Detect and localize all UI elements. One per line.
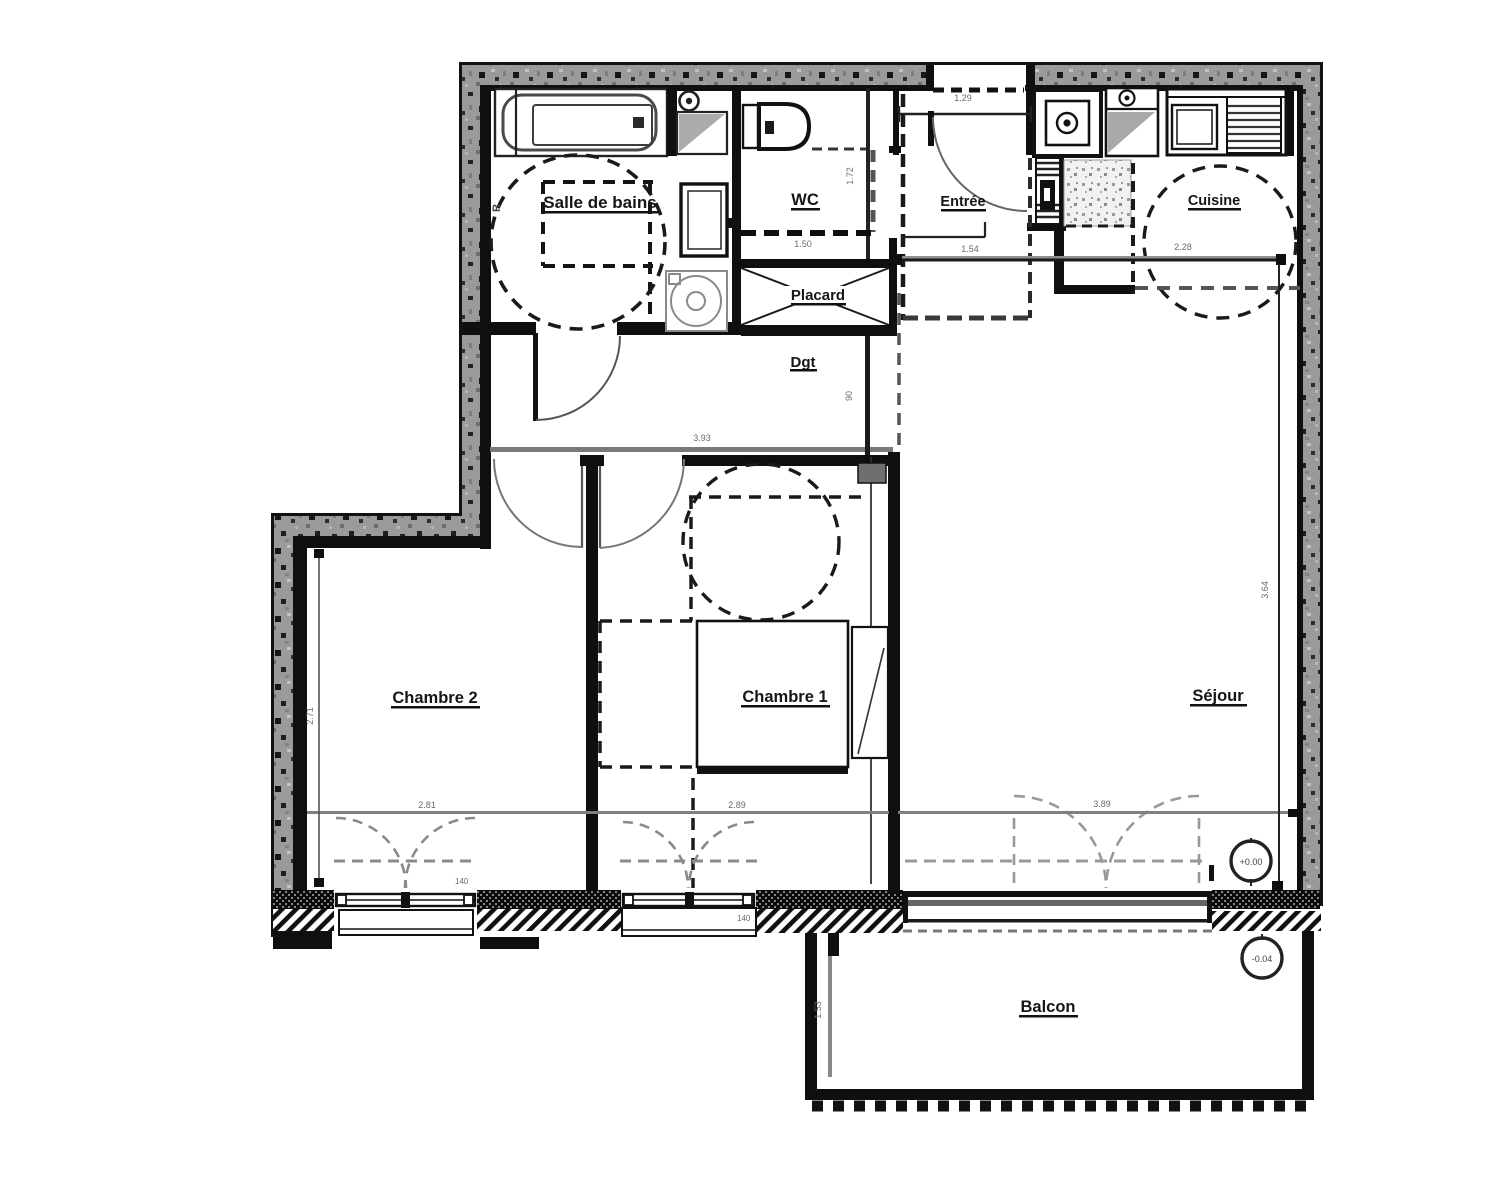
svg-text:140: 140	[737, 914, 751, 923]
svg-text:140: 140	[455, 877, 469, 886]
svg-text:+0.00: +0.00	[1240, 857, 1263, 867]
svg-text:2.28: 2.28	[1174, 242, 1192, 252]
svg-text:Dgt: Dgt	[791, 354, 816, 371]
svg-text:Placard: Placard	[791, 287, 845, 304]
svg-text:Chambre 2: Chambre 2	[392, 689, 477, 707]
svg-text:2.81: 2.81	[418, 800, 436, 810]
svg-text:2.71: 2.71	[305, 707, 315, 725]
svg-text:Cuisine: Cuisine	[1188, 193, 1240, 209]
svg-text:3.93: 3.93	[693, 433, 711, 443]
svg-text:3.64: 3.64	[1260, 581, 1270, 599]
svg-text:-0.04: -0.04	[1252, 954, 1273, 964]
svg-text:1.53: 1.53	[813, 1001, 823, 1019]
svg-text:1.72: 1.72	[845, 167, 855, 185]
svg-text:1.50: 1.50	[794, 239, 812, 249]
svg-text:Salle de bains: Salle de bains	[543, 193, 656, 212]
svg-text:WC: WC	[791, 191, 819, 209]
svg-text:1.29: 1.29	[954, 93, 972, 103]
svg-text:R: R	[491, 204, 503, 212]
svg-text:3.89: 3.89	[1093, 799, 1111, 809]
svg-text:Entrée: Entrée	[940, 194, 985, 210]
svg-text:1.54: 1.54	[961, 244, 979, 254]
svg-text:Séjour: Séjour	[1192, 687, 1244, 705]
svg-text:90: 90	[844, 391, 854, 401]
svg-text:Chambre 1: Chambre 1	[742, 688, 827, 706]
svg-text:2.89: 2.89	[728, 800, 746, 810]
svg-text:Balcon: Balcon	[1020, 998, 1075, 1016]
